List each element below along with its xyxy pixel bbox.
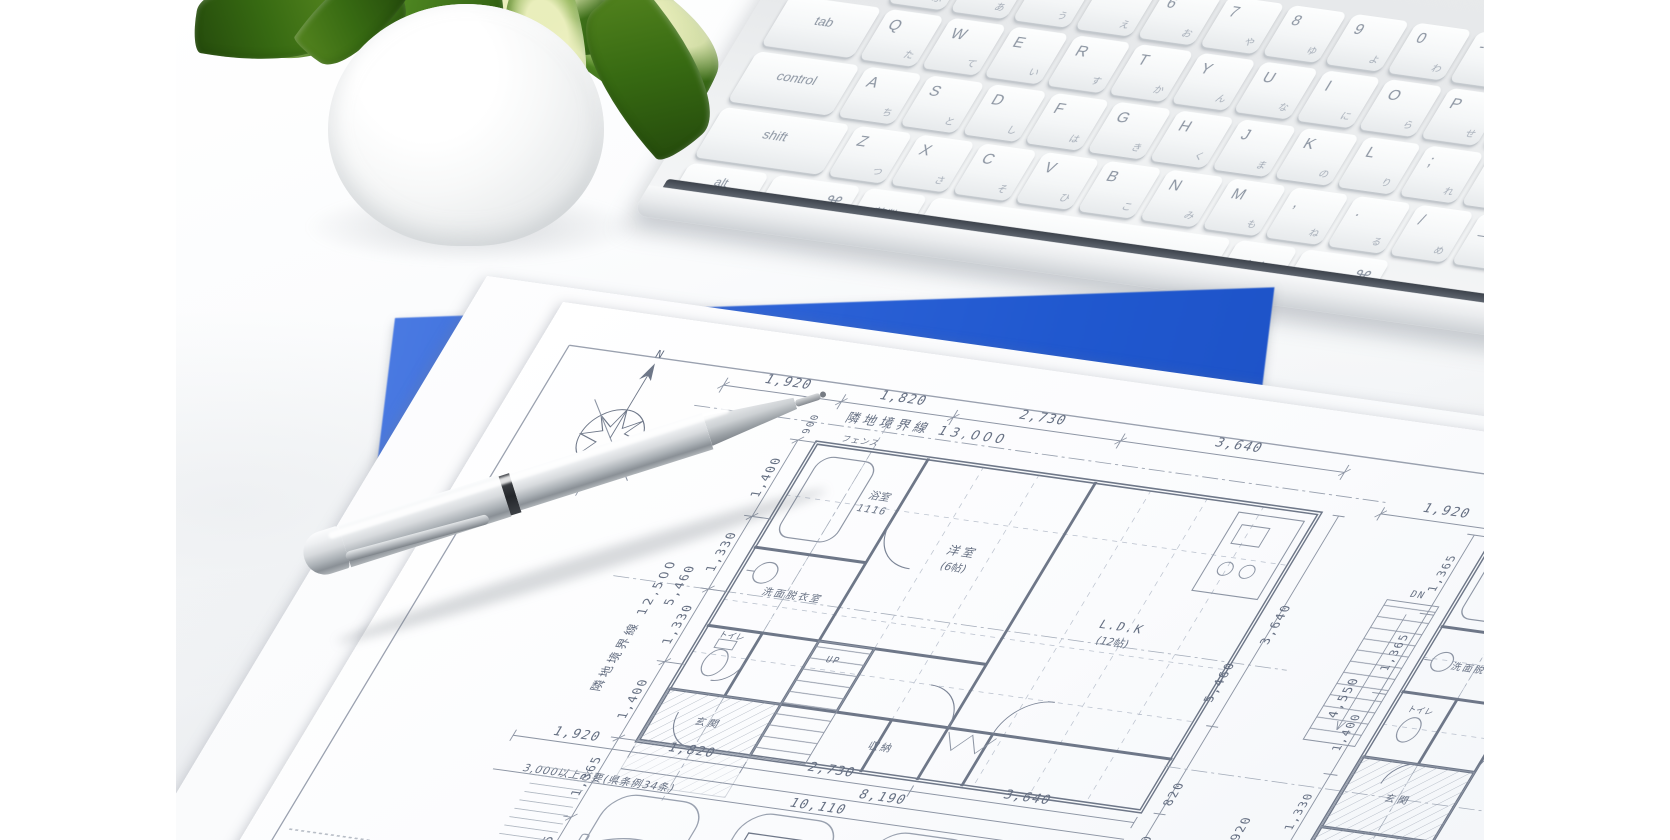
svg-text:5,460: 5,460 (1200, 661, 1239, 704)
svg-text:1116: 1116 (854, 503, 890, 518)
svg-text:L.D.K: L.D.K (1096, 617, 1147, 636)
svg-text:10,920: 10,920 (1212, 815, 1255, 840)
svg-text:3,640: 3,640 (1212, 435, 1267, 456)
pen-ball (819, 391, 827, 399)
plant-pot (328, 4, 604, 246)
svg-text:浴室: 浴室 (866, 488, 894, 503)
potted-plant (176, 0, 736, 294)
svg-text:820: 820 (1159, 781, 1188, 807)
svg-text:1,330: 1,330 (702, 530, 741, 573)
svg-text:10,110: 10,110 (786, 796, 850, 818)
photo-page: 2ふ3あ4う5え6お7や8ゆ9よ0わ-ほ^へ¥ーtabQたWてEいRすTかYんU… (0, 0, 1670, 840)
svg-text:1,330: 1,330 (658, 603, 697, 646)
svg-text:(12帖): (12帖) (1093, 634, 1132, 650)
svg-text:洋室: 洋室 (944, 543, 982, 561)
desk-photo: 2ふ3あ4う5え6お7や8ゆ9よ0わ-ほ^へ¥ーtabQたWてEいRすTかYんU… (176, 0, 1484, 840)
svg-text:2,730: 2,730 (1016, 408, 1071, 429)
svg-text:(6帖): (6帖) (937, 560, 969, 575)
svg-text:1,400: 1,400 (613, 677, 652, 720)
svg-text:1,330: 1,330 (1281, 792, 1317, 832)
svg-text:1,365: 1,365 (1424, 553, 1460, 593)
svg-text:1,920: 1,920 (1419, 501, 1474, 522)
key-control: control (727, 51, 860, 116)
svg-text:トイレ: トイレ (716, 631, 747, 643)
pen-tip (794, 392, 821, 407)
svg-text:トイレ: トイレ (1405, 705, 1436, 717)
car-outline (772, 829, 985, 840)
svg-text:1,400: 1,400 (746, 456, 785, 499)
svg-text:洗面脱衣室: 洗面脱衣室 (759, 585, 825, 605)
svg-text:洗面脱衣室: 洗面脱衣室 (1448, 660, 1484, 680)
svg-text:隣地境界線 12,500: 隣地境界線 12,500 (587, 558, 681, 692)
svg-text:収納: 収納 (865, 740, 897, 755)
svg-text:1,820: 1,820 (876, 388, 931, 409)
